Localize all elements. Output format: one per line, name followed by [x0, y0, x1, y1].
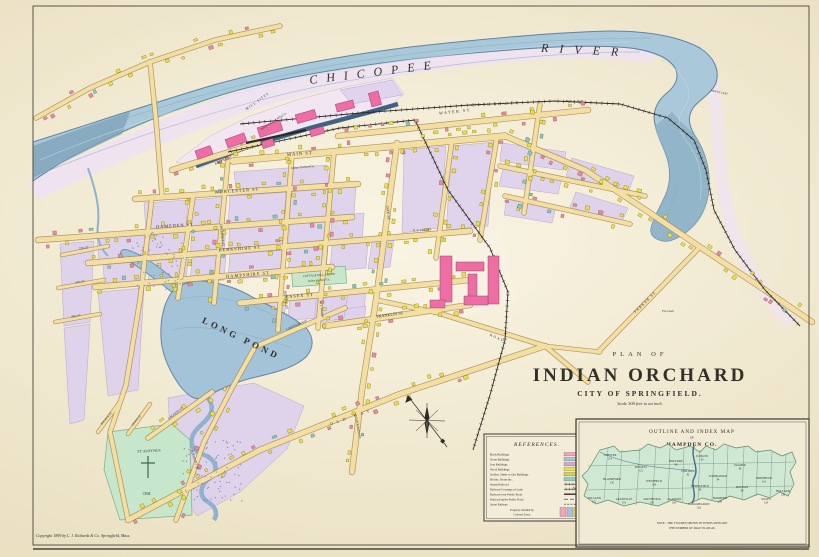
building	[108, 266, 111, 269]
orchard-dot	[235, 487, 236, 488]
building	[462, 272, 466, 276]
orchard-dot	[226, 441, 227, 442]
building	[175, 273, 178, 277]
orchard-dot	[219, 491, 220, 492]
orchard-dot	[151, 233, 152, 234]
building	[323, 191, 326, 194]
building	[218, 43, 223, 46]
building	[461, 225, 464, 229]
city-block	[64, 324, 90, 424]
orchard-dot	[214, 482, 215, 483]
orchard-dot	[160, 242, 161, 243]
building	[318, 225, 322, 229]
orchard-dot	[215, 458, 216, 459]
references-note-1: Property divided by	[509, 508, 534, 512]
rr-label-athol-branch: ATHOL BRANCH	[470, 101, 520, 108]
building	[288, 258, 291, 261]
building	[238, 280, 243, 284]
building	[568, 104, 571, 107]
building	[127, 239, 131, 242]
orchard-dot	[186, 461, 187, 462]
orchard-dot	[162, 237, 163, 238]
orchard-dot	[153, 275, 154, 276]
building	[438, 313, 442, 317]
orchard-dot	[226, 482, 227, 483]
building	[445, 128, 448, 132]
railroad-tie	[711, 205, 714, 206]
building	[481, 190, 485, 194]
inset-town-label: HAMPDEN	[713, 496, 728, 500]
building	[300, 180, 303, 183]
orchard-dot	[176, 260, 177, 261]
building	[287, 285, 290, 289]
orchard-dot	[182, 460, 183, 461]
building	[316, 256, 320, 260]
legend-row-label: Steam Railroad	[490, 483, 509, 487]
building	[143, 252, 146, 255]
orchard-dot	[234, 474, 235, 475]
orchard-dot	[228, 454, 229, 455]
building	[234, 152, 238, 156]
building	[364, 153, 368, 156]
building	[260, 150, 265, 154]
building	[283, 173, 286, 177]
building	[304, 250, 308, 253]
orchard-dot	[136, 242, 137, 243]
building	[236, 183, 240, 187]
orchard-dot	[237, 441, 238, 442]
building	[220, 163, 224, 167]
building	[433, 213, 437, 217]
building	[247, 195, 251, 198]
orchard-dot	[223, 440, 224, 441]
building	[324, 293, 327, 296]
building	[524, 156, 528, 161]
mill-building	[440, 256, 452, 302]
building	[150, 53, 154, 56]
building	[331, 211, 334, 214]
building	[292, 194, 296, 197]
building	[433, 131, 438, 134]
building	[732, 275, 737, 280]
orchard-dot	[162, 272, 163, 273]
railroad-tie	[290, 137, 291, 140]
building	[386, 174, 390, 178]
building	[473, 234, 476, 237]
orchard-dot	[182, 278, 183, 279]
orchard-dot	[143, 272, 144, 273]
building	[401, 149, 404, 154]
orchard-dot	[185, 490, 186, 491]
building	[516, 164, 521, 168]
building	[413, 238, 417, 241]
building	[53, 231, 57, 235]
orchard-dot	[167, 253, 168, 254]
orchard-dot	[221, 477, 222, 478]
building	[453, 156, 457, 159]
orchard-dot	[160, 266, 161, 267]
building	[350, 233, 353, 236]
building	[348, 451, 351, 455]
building	[330, 218, 334, 223]
orchard-dot	[197, 496, 198, 497]
inset-town-label: PALMER	[734, 463, 746, 467]
building	[227, 280, 231, 283]
building	[272, 306, 275, 309]
building	[523, 180, 527, 184]
building	[707, 244, 712, 249]
building	[245, 307, 249, 310]
building	[221, 254, 225, 257]
building	[362, 340, 365, 344]
building	[370, 367, 373, 370]
building	[388, 319, 393, 322]
building	[279, 237, 283, 240]
title-plan-of: PLAN OF	[613, 351, 668, 358]
building	[169, 259, 173, 263]
building	[488, 143, 492, 147]
building	[46, 245, 49, 248]
legend-row-label: Wood Buildings	[490, 468, 510, 472]
legend-row-label: Brick Buildings	[490, 453, 510, 457]
building	[138, 191, 141, 194]
building	[379, 308, 382, 312]
building	[249, 164, 253, 167]
orchard-dot	[173, 256, 174, 257]
building	[369, 289, 373, 294]
orchard-dot	[195, 473, 196, 474]
building	[573, 203, 577, 206]
building	[115, 238, 118, 241]
inset-town-label: HOLYOKE	[669, 459, 683, 463]
orchard-dot	[152, 232, 153, 233]
references-box: REFERENCES. Brick BuildingsStone Buildin…	[484, 434, 591, 521]
building	[259, 294, 263, 297]
building	[179, 190, 184, 193]
building	[598, 210, 603, 215]
inset-town-label: SOUTHWICK	[643, 497, 661, 501]
building	[323, 203, 326, 207]
inset-note-2: THE NUMBER OF PAGE IN ATLAS.	[669, 526, 716, 530]
building	[379, 232, 382, 236]
building	[542, 120, 545, 124]
orchard-dot	[224, 458, 225, 459]
orchard-dot	[186, 491, 187, 492]
cemetery-label-2: CEM.	[143, 492, 152, 496]
building	[323, 324, 327, 328]
building	[346, 177, 349, 180]
inset-title-of: OF	[690, 436, 694, 440]
building	[443, 238, 446, 242]
building	[319, 245, 323, 249]
mill-building	[488, 256, 499, 304]
building	[505, 160, 510, 165]
building	[374, 258, 378, 262]
inset-town-label: WILBRAHAM	[709, 474, 728, 478]
building	[299, 439, 303, 443]
building	[509, 129, 513, 133]
building	[325, 183, 328, 186]
orchard-dot	[234, 449, 235, 450]
orchard-dot	[140, 254, 141, 255]
title-scale: Scale 300 feet to an inch.	[617, 401, 663, 406]
building	[533, 169, 536, 173]
building	[106, 239, 109, 243]
orchard-dot	[132, 247, 133, 248]
building	[347, 141, 350, 145]
legend-row-label: Street Railway	[490, 503, 508, 507]
legend-row-label: Railroad under Public Road	[490, 498, 524, 502]
building	[376, 243, 380, 247]
railroad-tie	[333, 128, 334, 131]
building	[312, 193, 316, 196]
map-canvas: CHICOPEE RIVER INDIAN LEAP ATHOL BRANCH …	[0, 0, 819, 557]
building	[275, 150, 278, 154]
legend-row-label: Iron Buildings	[490, 463, 508, 467]
building	[247, 218, 250, 221]
building	[330, 232, 334, 236]
building	[381, 123, 384, 126]
building	[435, 148, 439, 151]
building	[262, 182, 266, 185]
building	[88, 93, 93, 98]
building	[65, 241, 68, 245]
building	[798, 303, 802, 308]
orchard-dot	[139, 286, 140, 287]
building	[338, 144, 341, 147]
building	[268, 293, 272, 297]
orchard-dot	[206, 443, 207, 444]
building	[467, 126, 470, 129]
orchard-dot	[196, 489, 197, 490]
building	[146, 287, 151, 291]
orchard-dot	[154, 234, 155, 235]
building	[153, 190, 156, 193]
building	[393, 208, 396, 211]
note-swatch	[567, 508, 573, 517]
building	[448, 133, 451, 136]
orchard-dot	[173, 254, 174, 255]
building	[611, 224, 615, 228]
building	[208, 297, 212, 302]
building	[50, 114, 55, 119]
orchard-dot	[201, 475, 202, 476]
orchard-dot	[171, 266, 172, 267]
building	[185, 200, 189, 204]
building	[229, 30, 233, 35]
orchard-dot	[181, 492, 182, 493]
orchard-dot	[216, 471, 217, 472]
building	[287, 161, 292, 164]
building	[681, 242, 686, 246]
legend-row-label: Railroad Crossing at Grade	[490, 488, 523, 492]
inset-town-label: RUSSELL	[635, 465, 648, 469]
inset-town-label: GRANVILLE	[616, 497, 633, 501]
building	[249, 266, 253, 269]
orchard-dot	[132, 262, 133, 263]
building	[343, 221, 347, 224]
building	[476, 221, 480, 226]
building	[363, 324, 368, 328]
building	[212, 240, 216, 245]
orchard-dot	[219, 481, 220, 482]
building	[366, 243, 369, 247]
inset-town-label: TOLLAND	[587, 496, 601, 500]
railroad-tie	[300, 135, 301, 138]
building	[481, 113, 485, 117]
orchard-dot	[183, 257, 184, 258]
building	[293, 187, 296, 191]
building	[208, 45, 213, 50]
railroad-tie	[709, 194, 712, 195]
building	[130, 264, 134, 268]
orchard-dot	[216, 462, 217, 463]
building	[354, 125, 358, 129]
building	[493, 124, 497, 127]
orchard-dot	[233, 493, 234, 494]
building	[285, 157, 289, 160]
building	[263, 278, 267, 281]
orchard-dot	[152, 240, 153, 241]
building	[387, 293, 391, 296]
building	[207, 220, 211, 224]
building	[581, 177, 585, 180]
building	[402, 306, 406, 310]
orchard-dot	[149, 250, 150, 251]
building	[376, 332, 379, 336]
building	[79, 229, 83, 232]
building	[93, 89, 97, 93]
building	[192, 230, 195, 233]
building	[480, 202, 483, 206]
orchard-dot	[239, 489, 240, 490]
orchard-dot	[227, 447, 228, 448]
orchard-dot	[177, 279, 178, 280]
title-name: INDIAN ORCHARD	[533, 365, 748, 386]
building	[151, 236, 155, 239]
orchard-dot	[218, 475, 219, 476]
orchard-dot	[240, 464, 241, 465]
building	[379, 282, 383, 285]
building	[345, 128, 349, 132]
orchard-dot	[215, 441, 216, 442]
orchard-dot	[232, 445, 233, 446]
building	[564, 183, 568, 187]
railroad-tie	[306, 134, 307, 137]
orchard-dot	[138, 288, 139, 289]
building	[92, 255, 95, 258]
building	[326, 317, 330, 321]
building	[302, 261, 305, 265]
building	[259, 34, 263, 38]
building	[191, 237, 194, 241]
building	[179, 248, 182, 252]
inset-town-label: CHESTER	[604, 453, 617, 457]
building	[342, 406, 347, 410]
railroad-tie	[295, 136, 296, 139]
inset-town-label: LONGMEADOW	[688, 502, 710, 506]
building	[487, 129, 490, 133]
orchard-dot	[146, 260, 147, 261]
rr-label-company: B. & A. R. R.	[566, 99, 585, 103]
orchard-dot	[226, 467, 227, 468]
building	[325, 166, 329, 170]
building	[366, 400, 370, 404]
building	[585, 205, 590, 210]
building	[377, 323, 381, 326]
building	[275, 274, 278, 279]
building	[328, 286, 331, 289]
building	[173, 287, 177, 292]
building	[527, 143, 531, 147]
building	[599, 179, 603, 184]
orchard-dot	[184, 448, 185, 449]
building	[617, 198, 622, 203]
building	[486, 151, 490, 154]
building	[165, 188, 168, 192]
fox-lawn-label: Fox Lawn	[661, 309, 675, 313]
orchard-dot	[149, 283, 150, 284]
references-title: REFERENCES.	[513, 442, 560, 448]
building	[413, 148, 417, 152]
orchard-dot	[138, 263, 139, 264]
building	[216, 204, 219, 208]
orchard-dot	[238, 467, 239, 468]
street-label-water: WATER ST	[439, 107, 471, 115]
building	[406, 122, 410, 126]
copyright-note: Copyright 1899 by L. J. Richards & Co. S…	[36, 533, 130, 539]
building	[414, 304, 419, 308]
building	[341, 297, 344, 300]
building	[429, 288, 433, 292]
references-note-2: Colored Lines.	[513, 513, 531, 517]
building	[724, 268, 728, 272]
building	[357, 327, 362, 330]
building	[368, 124, 371, 127]
building	[271, 276, 275, 280]
mill-building	[456, 262, 484, 271]
building	[298, 213, 301, 216]
orchard-dot	[180, 279, 181, 280]
orchard-dot	[206, 447, 207, 448]
building	[387, 231, 390, 235]
building	[214, 226, 218, 229]
building	[97, 291, 102, 294]
building	[220, 177, 223, 180]
building	[454, 311, 459, 316]
building	[529, 193, 532, 196]
building	[444, 220, 447, 225]
orchard-dot	[159, 247, 160, 248]
orchard-dot	[231, 453, 232, 454]
orchard-dot	[156, 246, 157, 247]
building	[135, 224, 138, 228]
building	[412, 278, 416, 281]
orchard-dot	[217, 455, 218, 456]
building	[195, 212, 199, 215]
building	[327, 426, 331, 430]
building	[404, 241, 408, 244]
legend-row-label: Railroad over Public Road	[490, 493, 522, 497]
building	[388, 243, 392, 248]
building	[402, 280, 407, 283]
orchard-dot	[221, 497, 222, 498]
map-plate: CHICOPEE RIVER INDIAN LEAP ATHOL BRANCH …	[0, 0, 819, 557]
building	[282, 226, 286, 230]
railroad-tie	[710, 200, 713, 201]
building	[363, 282, 367, 285]
building	[462, 131, 467, 135]
